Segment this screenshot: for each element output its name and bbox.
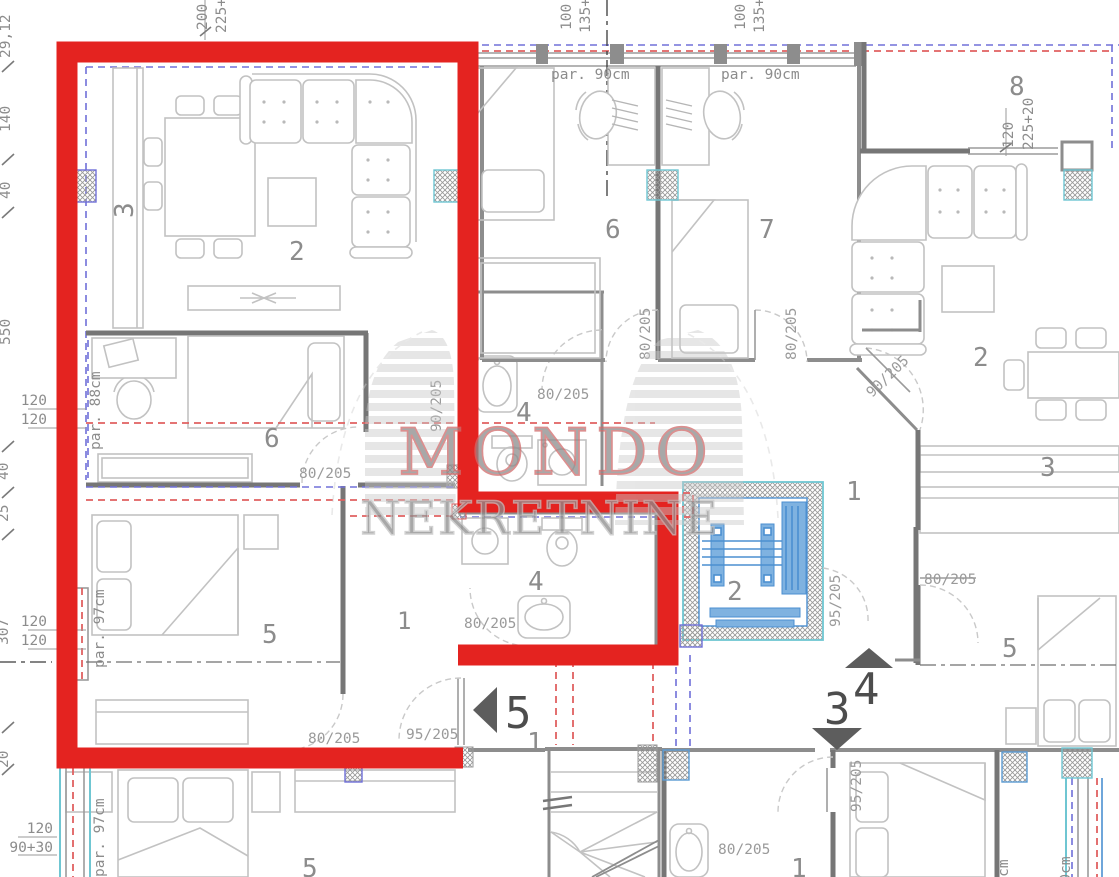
corner-sofa-right [850,164,1027,355]
dim-left-25: 25 [0,505,12,522]
door-90-hall-right: 90/205 [864,353,913,401]
room-kitchen-right: 3 [1040,453,1056,483]
watermark-subtitle: NEKRETNINE [360,491,719,545]
dim-left-2912: 29,12 [0,14,14,58]
dresser-room5-left [96,700,248,744]
dim-left-307: 307 [0,619,12,645]
watermark-title: MONDO [398,416,716,490]
bed-room5-left [92,515,238,635]
door-80-bath-upper: 80/205 [537,387,589,403]
room-hall-left: 1 [397,607,411,635]
parapet-90-br2: par. 90cm [1058,856,1074,877]
door-95-entrance: 95/205 [406,727,458,743]
room-hall-right: 1 [846,477,862,507]
wardrobe-room6-left [98,454,252,482]
bottom-strip [60,750,1102,877]
arrow-down-icon [812,728,862,750]
arrow-label-entrance: 5 [505,688,532,739]
room-5-right: 5 [1002,634,1018,664]
door-80-kitchen-right: 80/205 [924,572,976,588]
room-elevator: 2 [727,577,743,607]
right-apartment [850,42,1119,750]
room-1-bottom: 1 [791,854,807,877]
parapet-room7: par. 90cm [721,67,800,83]
tv-cabinet-left [188,286,340,310]
window-post [714,44,727,64]
dim-left-20: 20 [0,751,12,768]
dim-right-120: 120 [1001,122,1017,148]
desk-left [92,338,176,419]
terrace-8-walls [860,42,1092,170]
door-95-elevator: 95/205 [828,575,844,627]
window-post [787,44,800,64]
nightstand-room5-left [244,515,278,549]
dim-left-120a: 120 [21,393,47,409]
door-95-bottom-right: 95/205 [849,760,865,812]
dining-table-left [144,96,255,258]
kitchen-right [918,430,1119,665]
arrow-label-up: 4 [853,664,880,715]
room5-right [920,596,1119,750]
dim-top-135b: 135+20 [752,0,768,33]
dim-left-550: 550 [0,319,14,345]
arrow-label-down: 3 [824,684,851,735]
room-kitchen-left: 3 [110,202,140,218]
dim-left-120c: 120 [21,614,47,630]
dim-left-120b: 120 [21,412,47,428]
dim-right-225: 225+20 [1021,98,1037,150]
room-bedroom6-left: 6 [264,424,280,454]
parapet-97a: par. 97cm [92,589,108,668]
dim-left-120e: 120 [27,821,53,837]
door-80-bath-bottom: 80/205 [718,842,770,858]
parapet-97b: par. 97cm [92,798,108,877]
dim-left-120d: 120 [21,633,47,649]
room-living-right: 2 [973,343,989,373]
washbasin-upper [477,356,517,412]
bed-bottom-right [850,763,985,877]
stair-break-line [543,797,572,809]
room-6-mid: 6 [605,215,621,245]
door-80-bath-lower: 80/205 [464,616,516,632]
parapet-88: par. 88cm [88,371,104,450]
watermark: MONDO NEKRETNINE [332,330,778,545]
dim-top-135a: 135+20 [578,0,594,33]
room-7: 7 [759,215,775,245]
dining-table-right [1004,328,1119,420]
parapet-90-br1: par. 90cm [996,859,1012,877]
dim-left-9030: 90+30 [9,840,53,856]
arrow-left-icon [473,687,497,733]
wardrobe-room6-mid [476,258,600,358]
dim-left-140: 140 [0,106,14,132]
room-bedroom5-left: 5 [262,620,278,650]
floorplan-screenshot: 200 225+20 100 135+20 100 135+20 120 225… [0,0,1119,877]
parapet-room6: par. 90cm [551,67,630,83]
sink-bottom [670,824,708,877]
window-post [610,44,624,64]
dim-left-40: 40 [0,182,14,199]
kitchen-counter-left [113,68,143,328]
coffee-table-right [942,266,994,312]
sink-lower [518,596,570,638]
dim-top-100b: 100 [733,4,749,30]
window-post [536,44,548,64]
dim-top-100a: 100 [559,4,575,30]
dim-left-40b: 40 [0,463,12,480]
door-80-bedroom6: 80/205 [299,466,351,482]
room-bath-lower: 4 [528,567,544,597]
corner-sofa-left [240,74,416,258]
dim-top-200: 200 [195,4,211,30]
room-terrace-8: 8 [1009,72,1025,102]
door-80-bedroom5: 80/205 [308,731,360,747]
room-bedroom5-bottom: 5 [302,854,318,877]
dim-top-225: 225+20 [214,0,230,33]
floorplan-svg: 200 225+20 100 135+20 100 135+20 120 225… [0,0,1119,877]
door-80-room7: 80/205 [784,308,800,360]
balcony-rail-bottom-left [60,768,90,877]
room-living-left: 2 [289,237,305,267]
bed-bottom-left [66,770,455,877]
bed-room6-left [188,336,344,428]
bed-room6-mid [472,68,554,220]
door-arc-kitchen-right [920,585,978,643]
coffee-table-left [268,178,316,226]
door-arc-bottom-right [778,757,833,812]
window-room5-left [76,588,88,680]
